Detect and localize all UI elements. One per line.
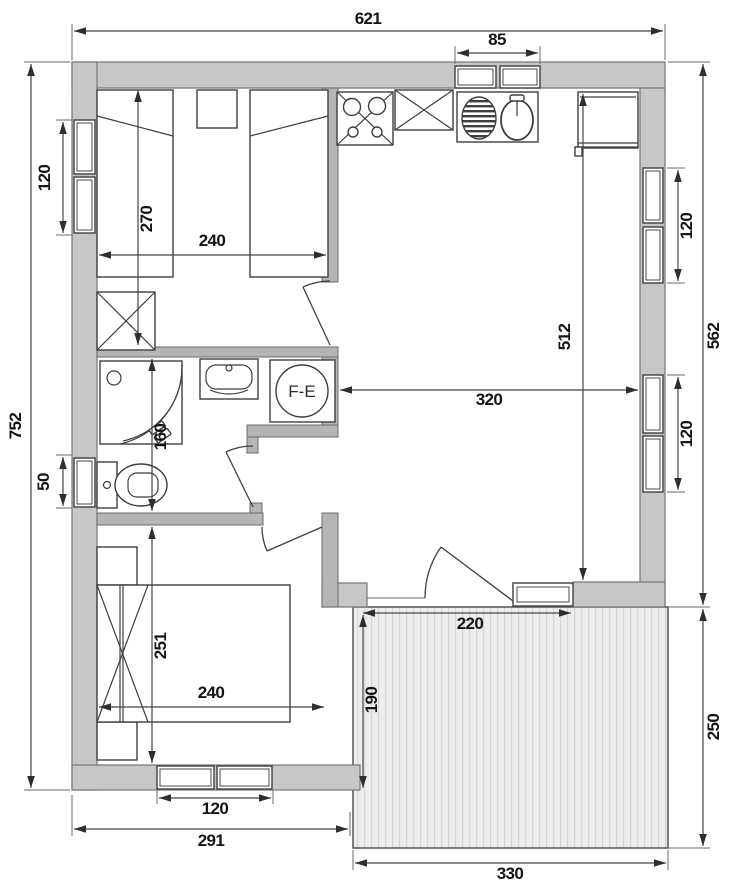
svg-text:120: 120	[35, 165, 54, 192]
single-bed-right	[250, 90, 328, 277]
dim-living-window-lower: 120	[667, 375, 696, 492]
wall-top	[72, 62, 665, 88]
washbasin	[200, 359, 258, 399]
window-bedroom1-lower	[74, 177, 95, 233]
door-bedroom2	[262, 527, 322, 551]
dim-bedroom1-window: 120	[35, 120, 72, 235]
svg-text:562: 562	[704, 323, 723, 350]
window-bedroom1-upper	[74, 120, 95, 174]
dim-living-width: 320	[340, 390, 638, 409]
nightstand-bedroom2-top	[97, 547, 137, 585]
single-bed-left	[97, 90, 173, 277]
dim-total-width: 621	[72, 9, 665, 60]
window-kitchen-right	[500, 66, 540, 88]
window-wc	[74, 458, 95, 507]
svg-text:50: 50	[34, 473, 53, 491]
fridge-cabinet	[575, 92, 638, 156]
wall-niche-bottom	[247, 425, 338, 437]
svg-text:160: 160	[151, 424, 170, 451]
svg-text:190: 190	[362, 687, 381, 714]
faucet-icon	[510, 95, 524, 101]
floor-plan-svg: F-E	[0, 0, 736, 888]
window-living-bottom	[513, 583, 573, 606]
water-heater: F-E	[270, 360, 335, 422]
window-living-right-up2	[643, 227, 663, 283]
svg-text:752: 752	[6, 413, 25, 440]
nightstand-bedroom1	[197, 90, 237, 128]
dim-kitchen-window: 85	[455, 30, 540, 64]
wardrobe	[97, 292, 155, 350]
svg-text:270: 270	[137, 206, 156, 233]
dim-bedroom2-depth: 251	[151, 527, 170, 763]
dim-terrace-width: 330	[353, 850, 668, 883]
svg-text:291: 291	[198, 831, 225, 850]
svg-text:251: 251	[151, 633, 170, 660]
dim-terrace-outer-depth: 250	[668, 609, 723, 848]
dim-wc-window: 50	[34, 455, 72, 508]
floor-plan-page: F-E	[0, 0, 736, 888]
window-kitchen-left	[455, 66, 496, 88]
wall-bottom-left	[72, 765, 360, 790]
double-bed	[97, 585, 290, 722]
svg-text:240: 240	[198, 683, 225, 702]
dim-bedroom2-window: 120	[157, 790, 273, 818]
svg-text:120: 120	[202, 799, 229, 818]
svg-text:120: 120	[677, 421, 696, 448]
svg-text:85: 85	[488, 30, 506, 49]
svg-text:512: 512	[555, 324, 574, 351]
wall-right	[640, 88, 665, 607]
drainboard-icon	[462, 97, 496, 139]
window-living-right-up1	[643, 168, 663, 223]
dim-right-outer-height: 562	[668, 62, 723, 607]
wall-bedroom2-right	[322, 513, 338, 607]
kitchen-cabinet	[395, 90, 453, 130]
door-bathroom	[226, 446, 253, 507]
doors	[226, 281, 513, 601]
stove	[337, 92, 393, 145]
window-living-right-mid1	[643, 375, 663, 433]
window-living-right-mid2	[643, 436, 663, 492]
wall-bottom-living	[573, 582, 665, 607]
dim-living-depth: 512	[555, 94, 583, 580]
svg-text:120: 120	[677, 213, 696, 240]
nightstand-bedroom2-bottom	[97, 722, 137, 760]
dim-living-window-upper: 120	[667, 168, 696, 283]
water-heater-label: F-E	[288, 382, 315, 401]
door-entrance	[367, 547, 513, 601]
toilet	[97, 462, 167, 508]
kitchen-sink	[457, 92, 538, 142]
svg-text:240: 240	[199, 231, 226, 250]
svg-text:250: 250	[704, 714, 723, 741]
window-bedroom2-right	[217, 766, 272, 789]
svg-text:330: 330	[497, 864, 524, 883]
svg-text:220: 220	[457, 614, 484, 633]
wall-bathroom-door-jamb-top	[247, 437, 258, 453]
svg-text:621: 621	[355, 9, 382, 28]
wall-bedroom2-top	[97, 513, 263, 525]
window-bedroom2-left	[157, 766, 214, 789]
terrace	[353, 607, 668, 848]
door-bedroom1	[303, 281, 330, 345]
svg-text:320: 320	[476, 390, 503, 409]
